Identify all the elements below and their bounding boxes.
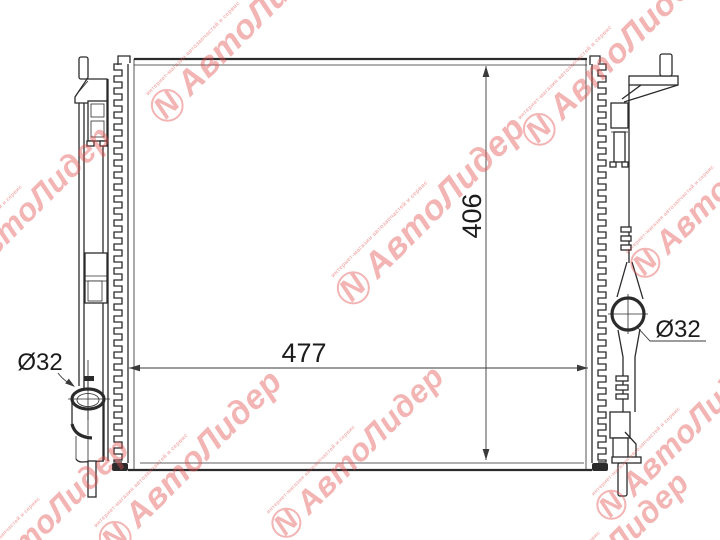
left-ladder-bracket (87, 101, 107, 146)
radiator-drawing-image: 477 406 Ø32 Ø32 интернет-магазин автозап… (0, 0, 720, 540)
height-dimension-label: 406 (457, 193, 487, 238)
right-ladder-bracket (610, 103, 628, 167)
left-serration (114, 64, 122, 462)
radiator-core (112, 56, 608, 471)
left-outlet-pipe (68, 360, 110, 463)
label-pipe-left: Ø32 (17, 349, 75, 387)
core-foot-left (112, 463, 128, 471)
pipe-right-diameter-label: Ø32 (655, 316, 700, 343)
technical-drawing: 477 406 Ø32 Ø32 (0, 0, 720, 540)
left-tank (68, 57, 110, 497)
core-foot-right (592, 463, 608, 471)
right-top-bracket (629, 76, 678, 85)
label-pipe-right: Ø32 (638, 316, 706, 343)
dimension-width: 477 (129, 338, 588, 371)
width-dimension-label: 477 (281, 338, 326, 368)
arrow-up-icon (483, 66, 490, 77)
right-ribs-lower (616, 376, 628, 399)
right-tank (608, 54, 678, 496)
right-bottom-bracket (610, 412, 641, 496)
leader-arrow-icon (65, 379, 75, 387)
left-drain-rod (88, 461, 96, 497)
left-mounting-pin (79, 57, 88, 79)
right-bottom-pin (618, 463, 627, 496)
right-serration (598, 64, 606, 462)
dimension-height: 406 (457, 66, 489, 460)
arrow-down-icon (483, 449, 490, 460)
pipe-left-diameter-label: Ø32 (17, 349, 62, 376)
arrow-left-icon (129, 365, 140, 372)
right-ribs-upper (621, 227, 631, 250)
left-side-bracket (85, 253, 107, 303)
right-mounting-pin (660, 54, 672, 76)
